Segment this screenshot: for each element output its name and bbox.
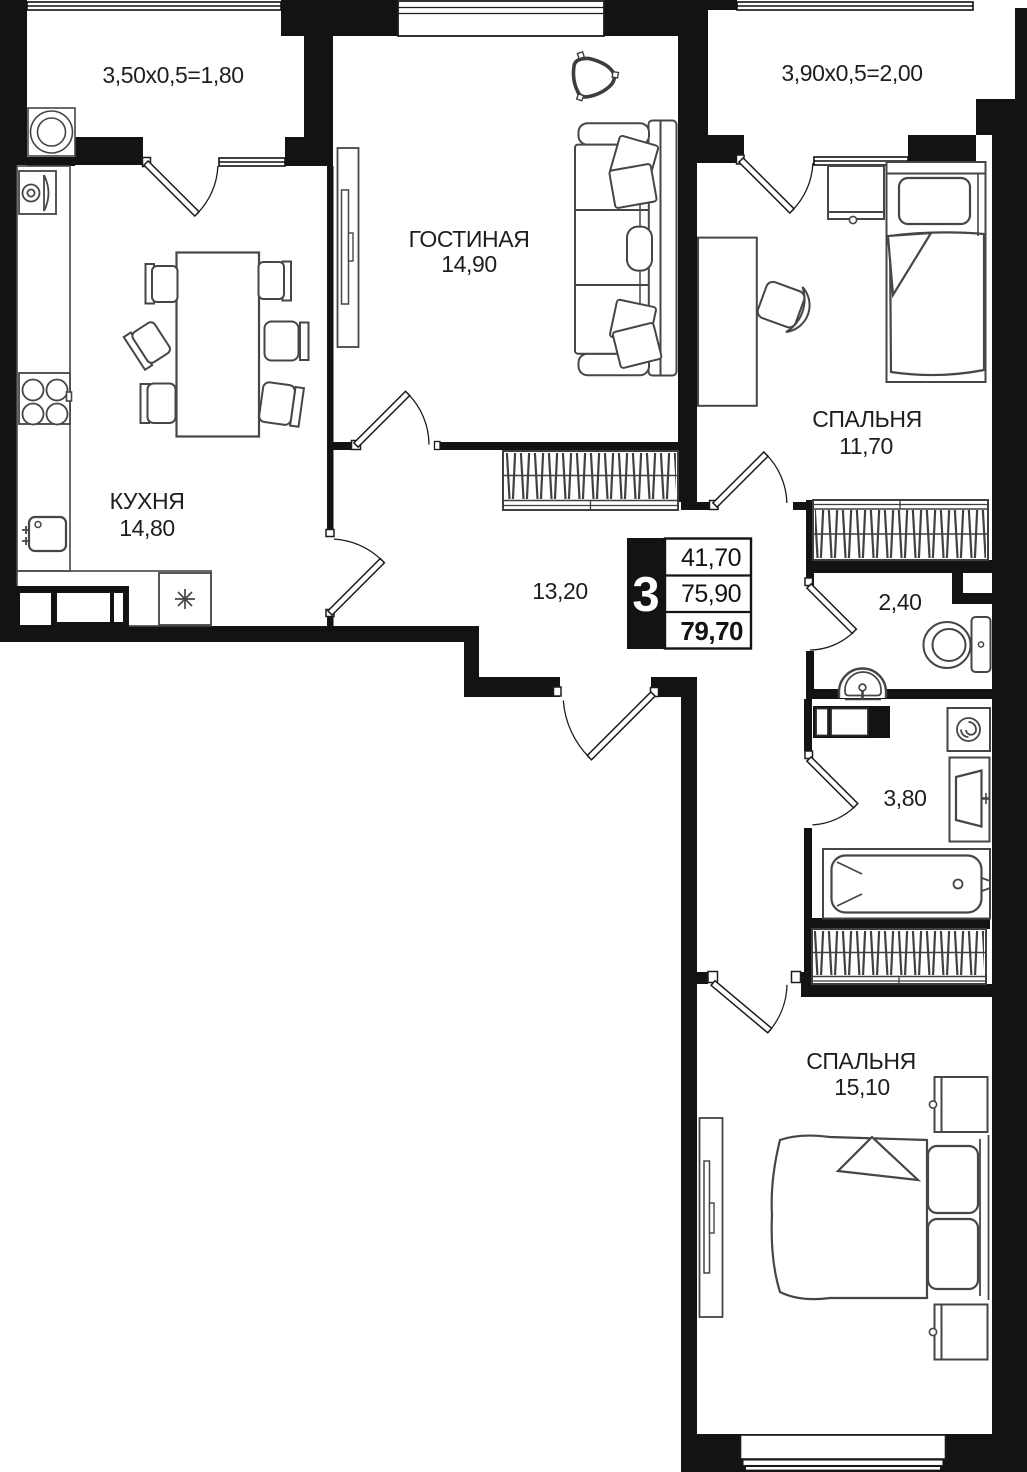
svg-text:13,20: 13,20 bbox=[532, 578, 588, 604]
svg-text:КУХНЯ: КУХНЯ bbox=[110, 488, 185, 514]
svg-text:75,90: 75,90 bbox=[681, 580, 741, 608]
svg-text:2,40: 2,40 bbox=[878, 589, 921, 615]
svg-text:3,90x0,5=2,00: 3,90x0,5=2,00 bbox=[781, 60, 922, 86]
svg-text:СПАЛЬНЯ: СПАЛЬНЯ bbox=[806, 1048, 916, 1074]
svg-text:15,10: 15,10 bbox=[834, 1074, 890, 1100]
svg-text:14,90: 14,90 bbox=[441, 251, 497, 277]
svg-text:ГОСТИНАЯ: ГОСТИНАЯ bbox=[409, 226, 530, 252]
svg-text:СПАЛЬНЯ: СПАЛЬНЯ bbox=[812, 406, 922, 432]
svg-text:11,70: 11,70 bbox=[839, 433, 893, 459]
svg-text:79,70: 79,70 bbox=[680, 616, 743, 646]
svg-text:3: 3 bbox=[632, 568, 659, 622]
svg-text:14,80: 14,80 bbox=[119, 515, 175, 541]
svg-text:3,80: 3,80 bbox=[883, 785, 926, 811]
svg-text:3,50x0,5=1,80: 3,50x0,5=1,80 bbox=[102, 62, 243, 88]
svg-text:41,70: 41,70 bbox=[681, 544, 741, 572]
